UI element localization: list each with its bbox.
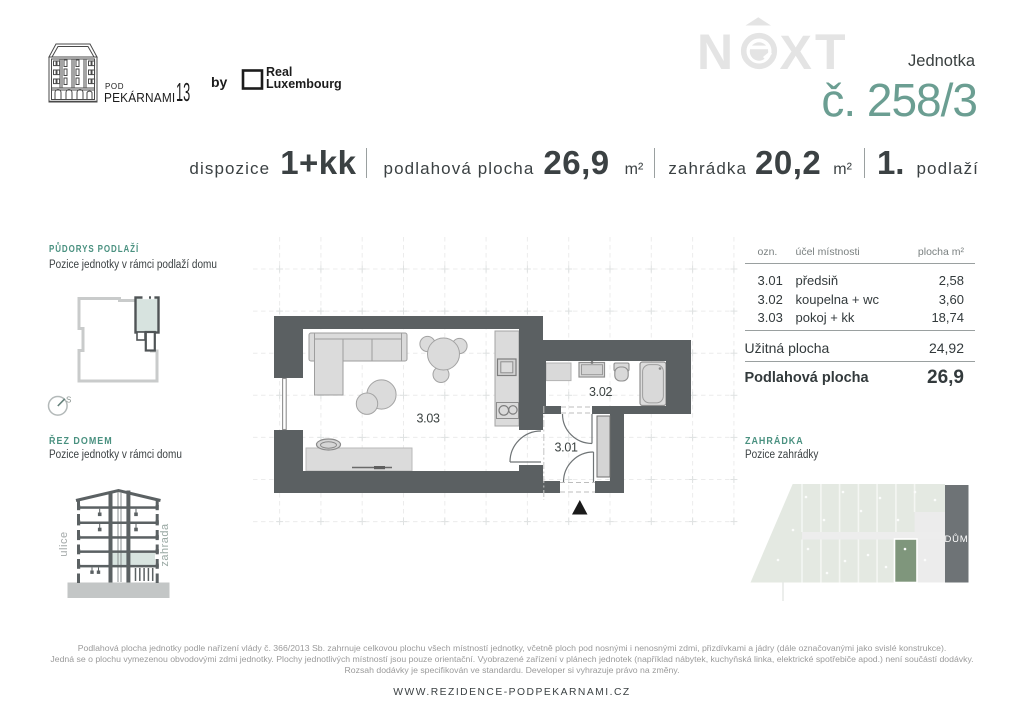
svg-text:3.02: 3.02 <box>589 385 612 399</box>
svg-text:3.01: 3.01 <box>555 441 578 455</box>
svg-text:zahrada: zahrada <box>159 523 171 567</box>
svg-text:3.03: 3.03 <box>417 412 440 426</box>
svg-text:S: S <box>66 396 71 405</box>
svg-text:DŮM: DŮM <box>944 533 968 545</box>
svg-text:N: N <box>697 24 733 80</box>
svg-text:ulice: ulice <box>58 531 70 556</box>
